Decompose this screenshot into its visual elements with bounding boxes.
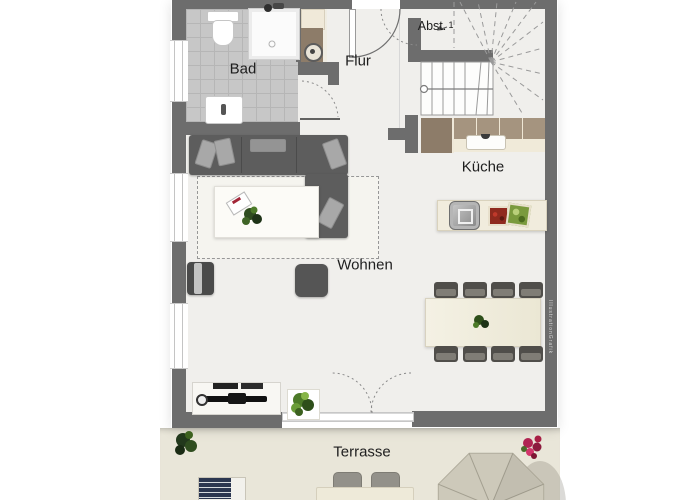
sofa-seam (241, 137, 242, 173)
room-divider-line (399, 9, 400, 128)
wall-segment (421, 50, 493, 62)
wall-segment (400, 0, 557, 9)
armchair-cushion (194, 263, 202, 294)
cutting-board-green (506, 203, 532, 228)
lounger-slats (199, 478, 231, 499)
room-label-terrasse: Terrasse (333, 444, 391, 461)
dining-chair (434, 346, 458, 362)
room-label-wohnen: Wohnen (337, 257, 393, 274)
wall-segment (412, 411, 545, 427)
dining-table (425, 298, 541, 347)
plant-pot (287, 389, 320, 420)
wall-segment (328, 62, 339, 85)
wall-segment (388, 128, 405, 140)
room-label-kueche: Küche (462, 159, 505, 176)
floorplan-canvas: Bad Flur Abst. Küche Wohnen Terrasse 1 I… (0, 0, 700, 500)
dining-chair (519, 346, 543, 362)
dining-chair (519, 282, 543, 298)
window (170, 40, 188, 102)
dining-chair (463, 282, 487, 298)
toilet-bowl (212, 20, 234, 46)
washbasin-faucet-icon (221, 104, 226, 115)
entrance-door-leaf (349, 9, 356, 58)
wall-segment (172, 100, 186, 173)
outdoor-table (316, 487, 414, 500)
dining-chair (434, 282, 458, 298)
kitchen-tall-cabinet (421, 118, 454, 153)
cabinet-sink-drain (310, 49, 315, 54)
sofa-seam (296, 137, 297, 173)
dining-chair (491, 346, 515, 362)
speaker (213, 383, 238, 389)
dining-chair (463, 346, 487, 362)
entrance-opening (352, 0, 400, 9)
wall-segment (172, 0, 186, 40)
wall-segment (186, 122, 300, 135)
coffee-table (214, 186, 319, 238)
room-label-abst: Abst. (418, 19, 447, 33)
room-label-bad: Bad (230, 61, 257, 78)
sofa-cushion (250, 139, 286, 152)
window (170, 173, 188, 242)
tv-base (228, 393, 246, 404)
room-label-flur: Flur (345, 53, 371, 70)
niche-shelf (301, 9, 325, 30)
stair-step-marker: 1 (448, 20, 453, 30)
speaker (241, 383, 263, 389)
window (170, 303, 188, 369)
watermark-text: IllustrationGrafik (547, 300, 553, 400)
wall-segment (172, 240, 186, 303)
cooktop-ring (458, 209, 473, 224)
dining-chair (491, 282, 515, 298)
ottoman (295, 264, 328, 297)
wall-segment (405, 115, 418, 153)
shower (248, 8, 300, 60)
sideboard-knob (196, 394, 208, 406)
